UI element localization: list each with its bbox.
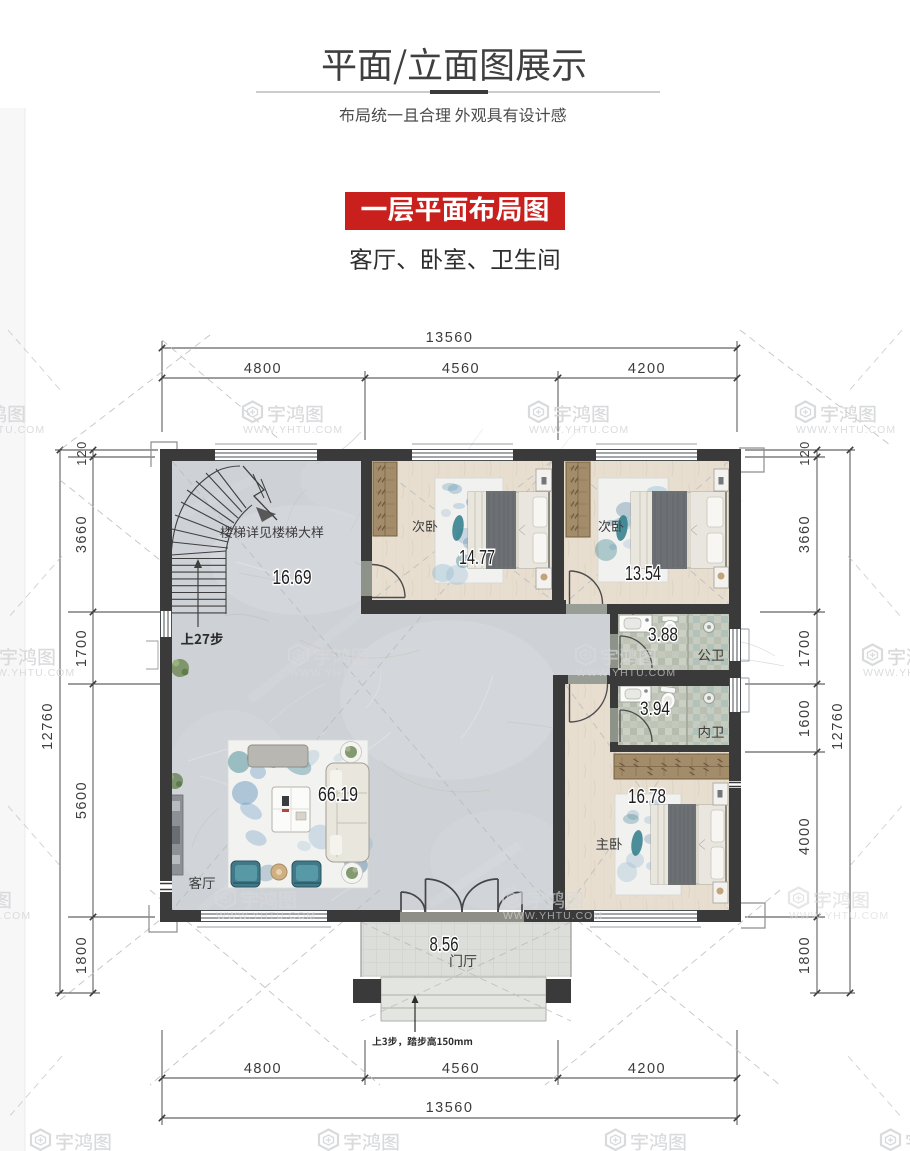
svg-text:4800: 4800 <box>244 361 282 377</box>
svg-text:3.94: 3.94 <box>640 699 670 720</box>
svg-text:1600: 1600 <box>797 699 813 737</box>
svg-text:66.19: 66.19 <box>318 784 358 806</box>
svg-text:1800: 1800 <box>797 936 813 974</box>
svg-text:13560: 13560 <box>426 330 474 346</box>
svg-text:3.88: 3.88 <box>648 625 678 646</box>
svg-text:1700: 1700 <box>74 629 90 667</box>
svg-text:8.56: 8.56 <box>430 934 459 956</box>
svg-text:13560: 13560 <box>426 1100 474 1116</box>
svg-text:12760: 12760 <box>830 702 846 750</box>
svg-text:16.69: 16.69 <box>273 567 312 589</box>
svg-text:4200: 4200 <box>628 1061 666 1077</box>
svg-text:12760: 12760 <box>40 702 56 750</box>
svg-text:120: 120 <box>798 440 812 465</box>
svg-text:16.78: 16.78 <box>628 786 666 808</box>
svg-text:4560: 4560 <box>442 361 480 377</box>
svg-text:13.54: 13.54 <box>625 563 661 585</box>
svg-text:3660: 3660 <box>797 515 813 553</box>
svg-text:5600: 5600 <box>74 781 90 819</box>
svg-text:4560: 4560 <box>442 1061 480 1077</box>
svg-text:120: 120 <box>75 440 89 465</box>
svg-text:4000: 4000 <box>797 817 813 855</box>
svg-text:1800: 1800 <box>74 936 90 974</box>
svg-text:14.77: 14.77 <box>459 547 495 569</box>
svg-text:4200: 4200 <box>628 361 666 377</box>
svg-text:4800: 4800 <box>244 1061 282 1077</box>
svg-text:1700: 1700 <box>797 629 813 667</box>
svg-text:3660: 3660 <box>74 515 90 553</box>
